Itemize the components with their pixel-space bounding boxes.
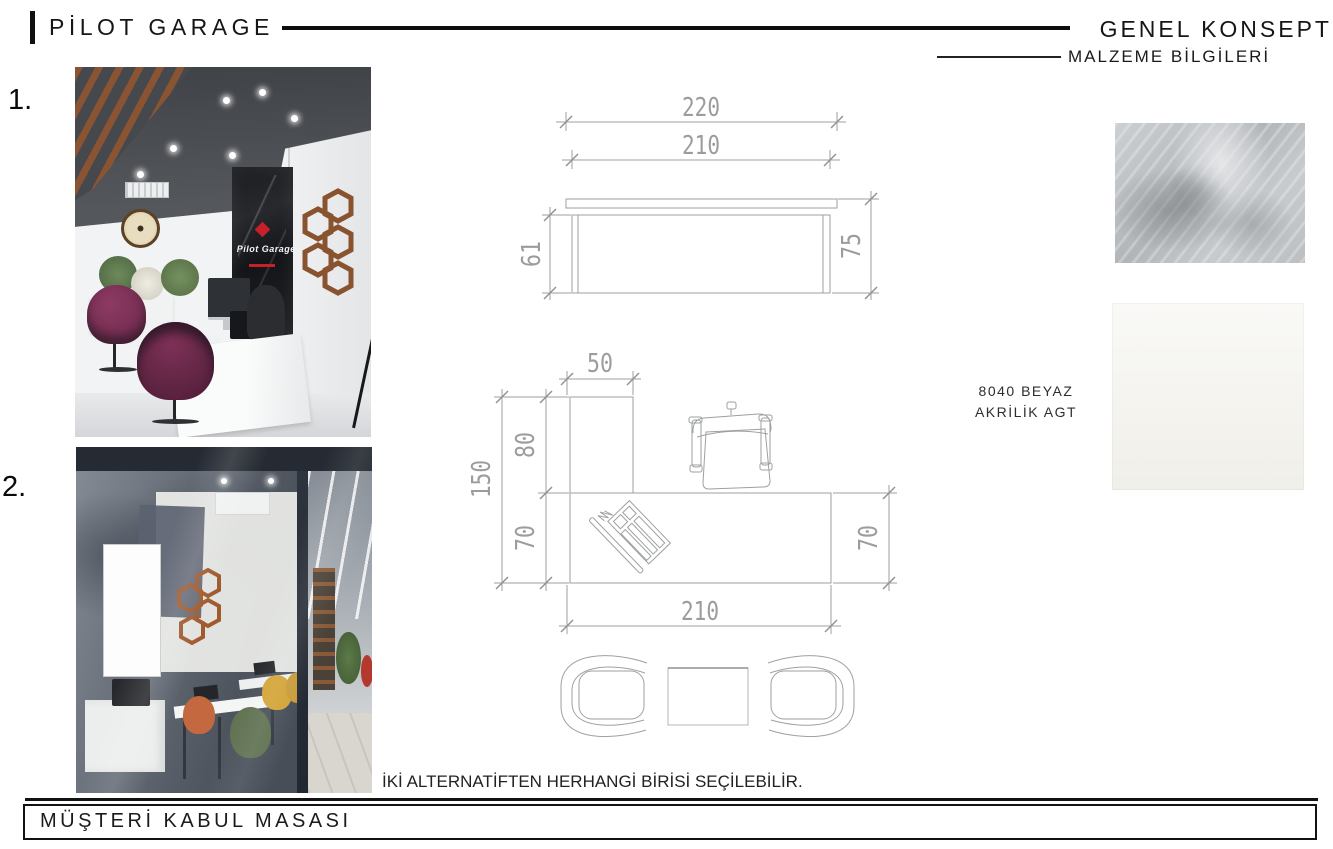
dim-150: 150 [467, 460, 497, 498]
materials-title: MALZEME BİLGİLERİ [1068, 47, 1270, 67]
keyboard-symbol [589, 491, 671, 574]
photo-plant [161, 259, 199, 296]
materials-rule [937, 56, 1061, 58]
logo-text: Pilot Garage [237, 244, 288, 254]
dim-70-right: 70 [854, 525, 884, 551]
photo-spotlight [229, 152, 236, 159]
logo-mark-icon [254, 221, 270, 237]
dim-70-left: 70 [511, 525, 541, 551]
guest-chair-right [768, 656, 854, 737]
dimension-labels: 220 210 61 75 50 150 80 70 70 210 [467, 93, 884, 627]
brand-accent-bar [30, 11, 35, 44]
photo-spotlight [137, 171, 144, 178]
dim-210: 210 [682, 131, 720, 161]
coffee-table-symbol [668, 668, 748, 725]
footer-rule [25, 798, 1318, 801]
photo-hex-shelves [294, 185, 364, 310]
photo-plum-chair [87, 285, 146, 344]
chair-base [152, 419, 199, 424]
photo-spotlight [170, 145, 177, 152]
dim-210-plan: 210 [681, 597, 719, 627]
glass-reflection [76, 447, 372, 793]
material-label-line1: 8040 BEYAZ [950, 381, 1102, 402]
concept-board: PİLOT GARAGE GENEL KONSEPT MALZEME BİLGİ… [0, 0, 1333, 849]
dim-75: 75 [837, 233, 867, 259]
office-chair-symbol [689, 402, 772, 489]
material-label-line2: AKRİLİK AGT [950, 402, 1102, 423]
guest-chair-left [561, 656, 647, 737]
brand-title: PİLOT GARAGE [49, 14, 274, 41]
page-title: MÜŞTERİ KABUL MASASI [40, 810, 352, 833]
header-rule [282, 26, 1070, 30]
dim-80: 80 [511, 432, 541, 458]
photo-spotlight [259, 89, 266, 96]
dim-220: 220 [682, 93, 720, 123]
photo-office-chair [247, 285, 285, 341]
plan-drawing [494, 371, 897, 634]
photo-1-number: 1. [8, 84, 32, 117]
technical-drawing: 220 210 61 75 50 150 80 70 70 210 [460, 85, 920, 765]
chair-post [113, 341, 116, 371]
material-swatch-gray-plaster [1115, 123, 1305, 263]
photo-plum-chair-front [137, 322, 214, 400]
material-label: 8040 BEYAZ AKRİLİK AGT [950, 381, 1102, 423]
dim-50: 50 [587, 349, 613, 379]
alternatives-note: İKİ ALTERNATİFTEN HERHANGİ BİRİSİ SEÇİLE… [382, 772, 803, 792]
reference-photo-reception: Pilot Garage [75, 67, 371, 437]
photo-logo: Pilot Garage [237, 224, 288, 272]
material-swatch-white-acrylic [1112, 303, 1304, 490]
logo-underline [249, 264, 275, 267]
chair-base [99, 367, 137, 372]
photo-2-number: 2. [2, 471, 26, 504]
photo-spotlight [223, 97, 230, 104]
dim-61: 61 [517, 241, 547, 267]
reference-photo-storefront [76, 447, 372, 793]
photo-ac-vent [125, 182, 168, 199]
concept-title: GENEL KONSEPT [1100, 16, 1332, 43]
photo-wall-clock [121, 209, 160, 248]
